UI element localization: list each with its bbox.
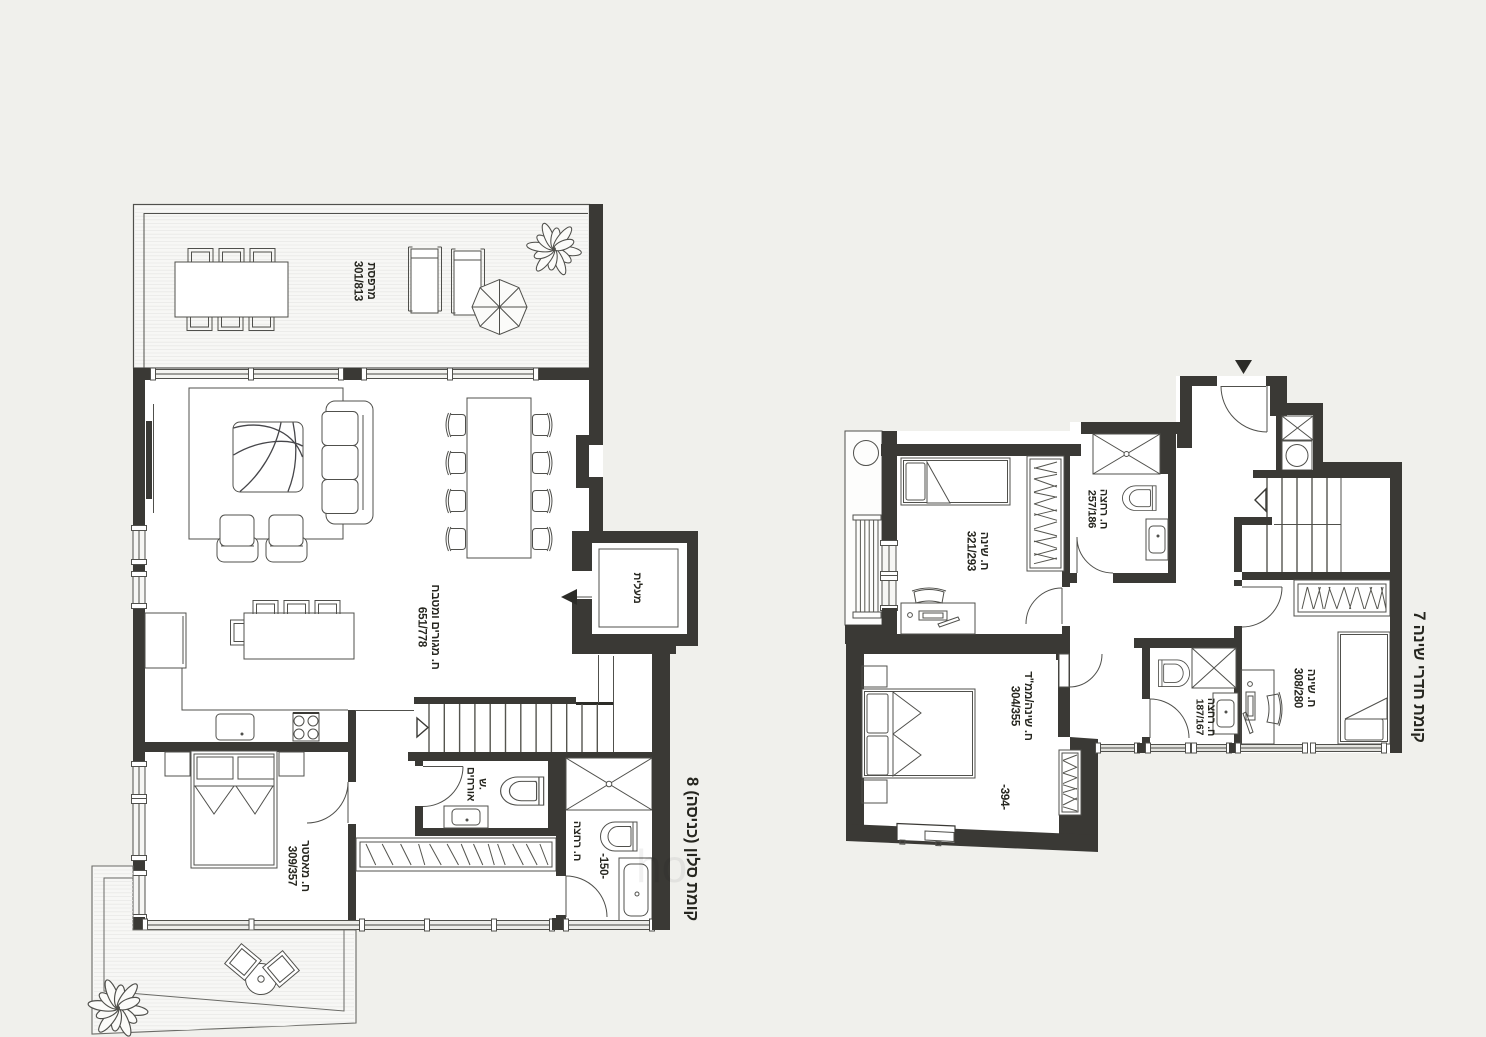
svg-text:ho: ho — [636, 840, 687, 892]
svg-text:ח. רחצה: ח. רחצה — [571, 821, 583, 861]
svg-text:-150-: -150- — [597, 853, 609, 879]
svg-text:ח. מאסטר309/357: ח. מאסטר309/357 — [286, 840, 312, 892]
svg-text:-394-: -394- — [998, 784, 1010, 810]
svg-text:קומת חדרי שינה 7: קומת חדרי שינה 7 — [1410, 611, 1428, 743]
svg-text:ח. רחצה187/167: ח. רחצה187/167 — [1194, 698, 1218, 736]
svg-text:ח. רחצה257/186: ח. רחצה257/186 — [1086, 489, 1110, 529]
svg-text:ח. שינה321/293: ח. שינה321/293 — [965, 531, 991, 571]
svg-text:ח. שינה308/280: ח. שינה308/280 — [1292, 668, 1318, 708]
svg-text:מרפסת301/813: מרפסת301/813 — [352, 261, 378, 301]
svg-text:מעלית: מעלית — [631, 573, 644, 604]
